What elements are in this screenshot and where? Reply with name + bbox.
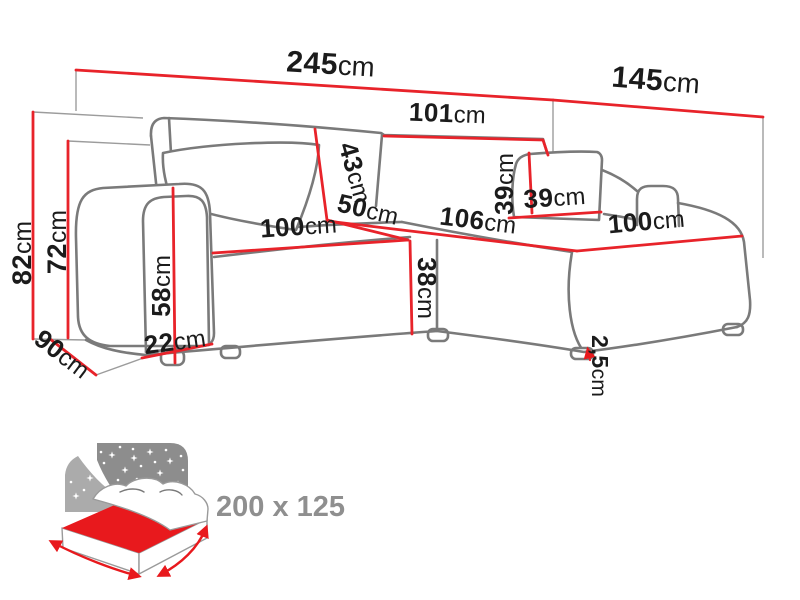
star-dot-icon	[119, 446, 122, 449]
dimension-label-leg-height: 2,5cm	[587, 335, 613, 397]
star-dot-icon	[100, 451, 103, 454]
star-dot-icon	[117, 479, 120, 482]
star-dot-icon	[140, 465, 143, 468]
sofa-dimension-diagram: 245cm145cm101cm82cm72cm58cm22cm90cm43cm5…	[0, 0, 800, 600]
star-dot-icon	[182, 469, 185, 472]
dimension-label-pillow-height: 39cm	[489, 153, 519, 215]
star-dot-icon	[165, 449, 168, 452]
dimension-label-armrest-height: 58cm	[146, 255, 176, 317]
dimension-label-pillow-width: 39cm	[523, 180, 587, 214]
star-dot-icon	[154, 461, 157, 464]
dimension-label-chaise-total-depth: 145cm	[610, 61, 701, 101]
dimension-label-right-backrest-width: 101cm	[408, 97, 486, 130]
sleeping-function-icon	[52, 443, 208, 576]
product-dimension-diagram: 245cm145cm101cm82cm72cm58cm22cm90cm43cm5…	[0, 0, 800, 600]
dimension-label-backrest-height: 72cm	[42, 210, 72, 274]
star-dot-icon	[103, 462, 106, 465]
sofa-feet	[161, 324, 743, 365]
star-dot-icon	[180, 455, 183, 458]
star-dot-icon	[95, 467, 98, 470]
dimension-label-right-seat-width: 100cm	[607, 203, 686, 240]
star-dot-icon	[132, 448, 135, 451]
star-dot-icon	[83, 489, 86, 492]
dimension-label-seat-height: 38cm	[412, 257, 442, 319]
sleeping-area-size: 200 x 125	[216, 491, 345, 523]
star-dot-icon	[70, 481, 73, 484]
dimension-label-left-seat-width: 100cm	[259, 208, 338, 243]
dimension-label-total-height: 82cm	[7, 221, 37, 285]
dimension-label-total-width: 245cm	[285, 45, 375, 83]
